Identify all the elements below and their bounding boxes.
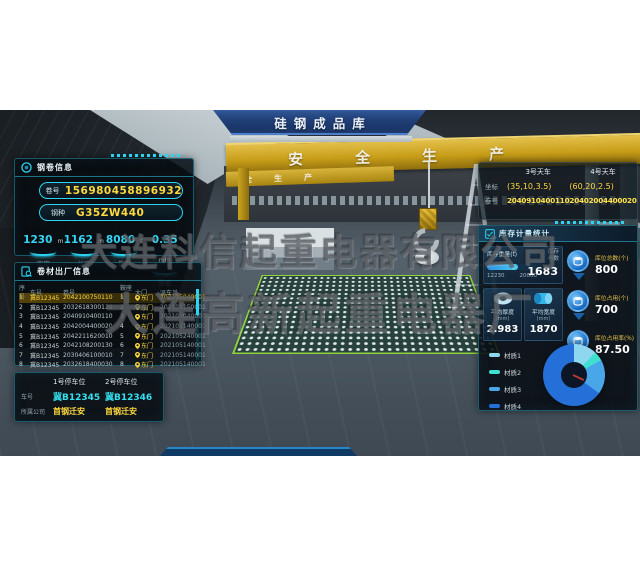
steel-grade-label: 钢种 [40, 208, 76, 218]
legend-item[interactable]: 材质1 [489, 346, 521, 363]
table-row[interactable]: 6冀B12345 20421082001306 东门 202105140001 [19, 341, 195, 351]
stat-used-slots: 库位占用(个) 700 [567, 288, 637, 324]
crane-leg [238, 168, 249, 220]
material-donut [543, 344, 605, 406]
parking-spot-1-title: 1号停车位 [53, 377, 105, 387]
avg-width-value: 1870 [525, 324, 562, 335]
document-search-icon [21, 266, 32, 277]
legend-item[interactable]: 材质2 [489, 363, 521, 380]
coil-panel-title: 钢卷信息 [37, 162, 73, 173]
coil-cylinder-icon [533, 291, 555, 306]
avg-thickness-card: 平均厚度 (mm) 2.983 [483, 288, 522, 341]
crane-status-panel: 3号天车 4号天车 坐标 (35,10,3.5) (60,20,2.5) 卷号 … [478, 162, 638, 220]
slots-total-icon [567, 250, 589, 272]
pin-icon [135, 304, 140, 310]
inventory-weight-card: 库存重量(t) 库存 卷数 12230 20000 1683 [483, 246, 563, 284]
app-root: 安全生产 全生产 硅钢成品库 钢卷信息 卷号 156980458896932 [0, 0, 640, 580]
plate-1: 冀B12345 [53, 390, 105, 403]
zone-title: 硅钢成品库 [267, 113, 372, 132]
steel-grade-field: 钢种 G35ZW440 [39, 204, 183, 221]
coil-icon [21, 162, 32, 173]
table-row[interactable]: 4冀B12345 20420044000204 东门 202105140001 [19, 322, 195, 332]
parking-panel: 1号停车位 2号停车位 车号 冀B12345 冀B12346 所属公司 首钢迁安… [14, 372, 164, 422]
coord-label: 坐标 [485, 181, 507, 191]
material-legend: 材质1 材质2 材质3 材质4 [489, 346, 521, 414]
stat-arc [71, 248, 97, 256]
donut-hole [561, 362, 587, 388]
crane-coil-label: 卷号 [485, 195, 507, 205]
donut-needle [573, 374, 585, 381]
legend-swatch [489, 370, 500, 374]
weight-current: 12230 [487, 273, 505, 279]
table-row[interactable]: 2冀B12345 20326183001202 东门 202105150001 [19, 303, 195, 313]
girder-slogan-lower: 全生产 [244, 171, 334, 185]
legend-swatch [489, 387, 500, 391]
table-header-row: 序号车号 卷号鞍座号 大门派车单 [19, 283, 195, 293]
company-label: 所属公司 [21, 407, 53, 416]
avg-thickness-value: 2.983 [484, 324, 521, 335]
shipment-info-panel: 卷材出厂信息 序号车号 卷号鞍座号 大门派车单 1冀B12345 2042100… [14, 262, 202, 366]
plate-2: 冀B12346 [105, 390, 157, 403]
pin-icon [135, 295, 140, 301]
zone-banner: 硅钢成品库 [213, 110, 426, 135]
legend-swatch [489, 404, 500, 408]
pin-icon [135, 343, 140, 349]
inventory-stats-panel: 库存计量统计 库存重量(t) 库存 卷数 12230 20000 1683 平均… [478, 225, 638, 411]
coil-count-value: 1683 [527, 265, 558, 278]
legend-swatch [489, 353, 500, 357]
crane-4-title: 4号天车 [569, 167, 636, 177]
legend-item[interactable]: 材质3 [489, 380, 521, 397]
slots-used-icon [567, 290, 589, 312]
crane-3-coord: (35,10,3.5) [507, 182, 569, 191]
stat-total-slots: 库位总数(个) 800 [567, 248, 637, 284]
table-scrollbar[interactable] [196, 289, 199, 360]
table-row[interactable]: 3冀B12345 20409104001103 东门 202105040001 [19, 312, 195, 322]
avg-width-card: 平均宽度 (mm) 1870 [524, 288, 563, 341]
crane-hook-block [419, 208, 437, 230]
banner-underline [230, 136, 412, 142]
crane-3-title: 3号天车 [507, 167, 569, 177]
checklist-chart-icon [485, 229, 495, 239]
pin-icon [135, 333, 140, 339]
coil-number-value: 156980458896932 [65, 185, 182, 197]
table-row[interactable]: 5冀B12345 20422116200105 东门 202105240001 [19, 331, 195, 341]
weight-progress-fill [487, 264, 518, 270]
pin-icon [135, 314, 140, 320]
company-1: 首钢迁安 [53, 406, 105, 417]
shipment-table: 序号车号 卷号鞍座号 大门派车单 1冀B12345 20421007501101… [15, 281, 201, 372]
coil-number-field: 卷号 156980458896932 [39, 182, 183, 199]
coil-face-icon [492, 291, 514, 306]
legend-item[interactable]: 材质4 [489, 397, 521, 414]
crane-4-coil: 20402004400020 [569, 196, 636, 205]
pin-icon [135, 362, 140, 368]
table-row[interactable]: 1冀B12345 20421007501101 东门 202105040001 [19, 293, 195, 303]
parking-spot-2-title: 2号停车位 [105, 377, 157, 387]
table-row[interactable]: 8冀B12345 20326184000308 东门 202105140001 [19, 360, 195, 370]
crane-4-coord: (60,20,2.5) [569, 182, 636, 191]
stat-arc [111, 248, 137, 256]
table-row[interactable]: 7冀B12345 20304061000107 东门 202105140001 [19, 351, 195, 361]
pin-icon [135, 352, 140, 358]
stat-arc [30, 248, 56, 256]
company-2: 首钢迁安 [105, 406, 157, 417]
inventory-panel-title: 库存计量统计 [499, 228, 550, 239]
pin-icon [135, 324, 140, 330]
bottom-nav-trapezoid[interactable] [160, 447, 357, 456]
plate-label: 车号 [21, 392, 53, 401]
crane-3-coil: 2040910400110 [507, 196, 569, 205]
hanging-coil [415, 250, 439, 265]
coil-count-label: 库存 卷数 [548, 249, 559, 262]
coil-info-panel: 钢卷信息 卷号 156980458896932 钢种 G35ZW440 1230… [14, 158, 194, 256]
coil-number-label: 卷号 [40, 186, 65, 196]
steel-grade-value: G35ZW440 [76, 207, 144, 219]
shipment-panel-title: 卷材出厂信息 [37, 266, 91, 277]
